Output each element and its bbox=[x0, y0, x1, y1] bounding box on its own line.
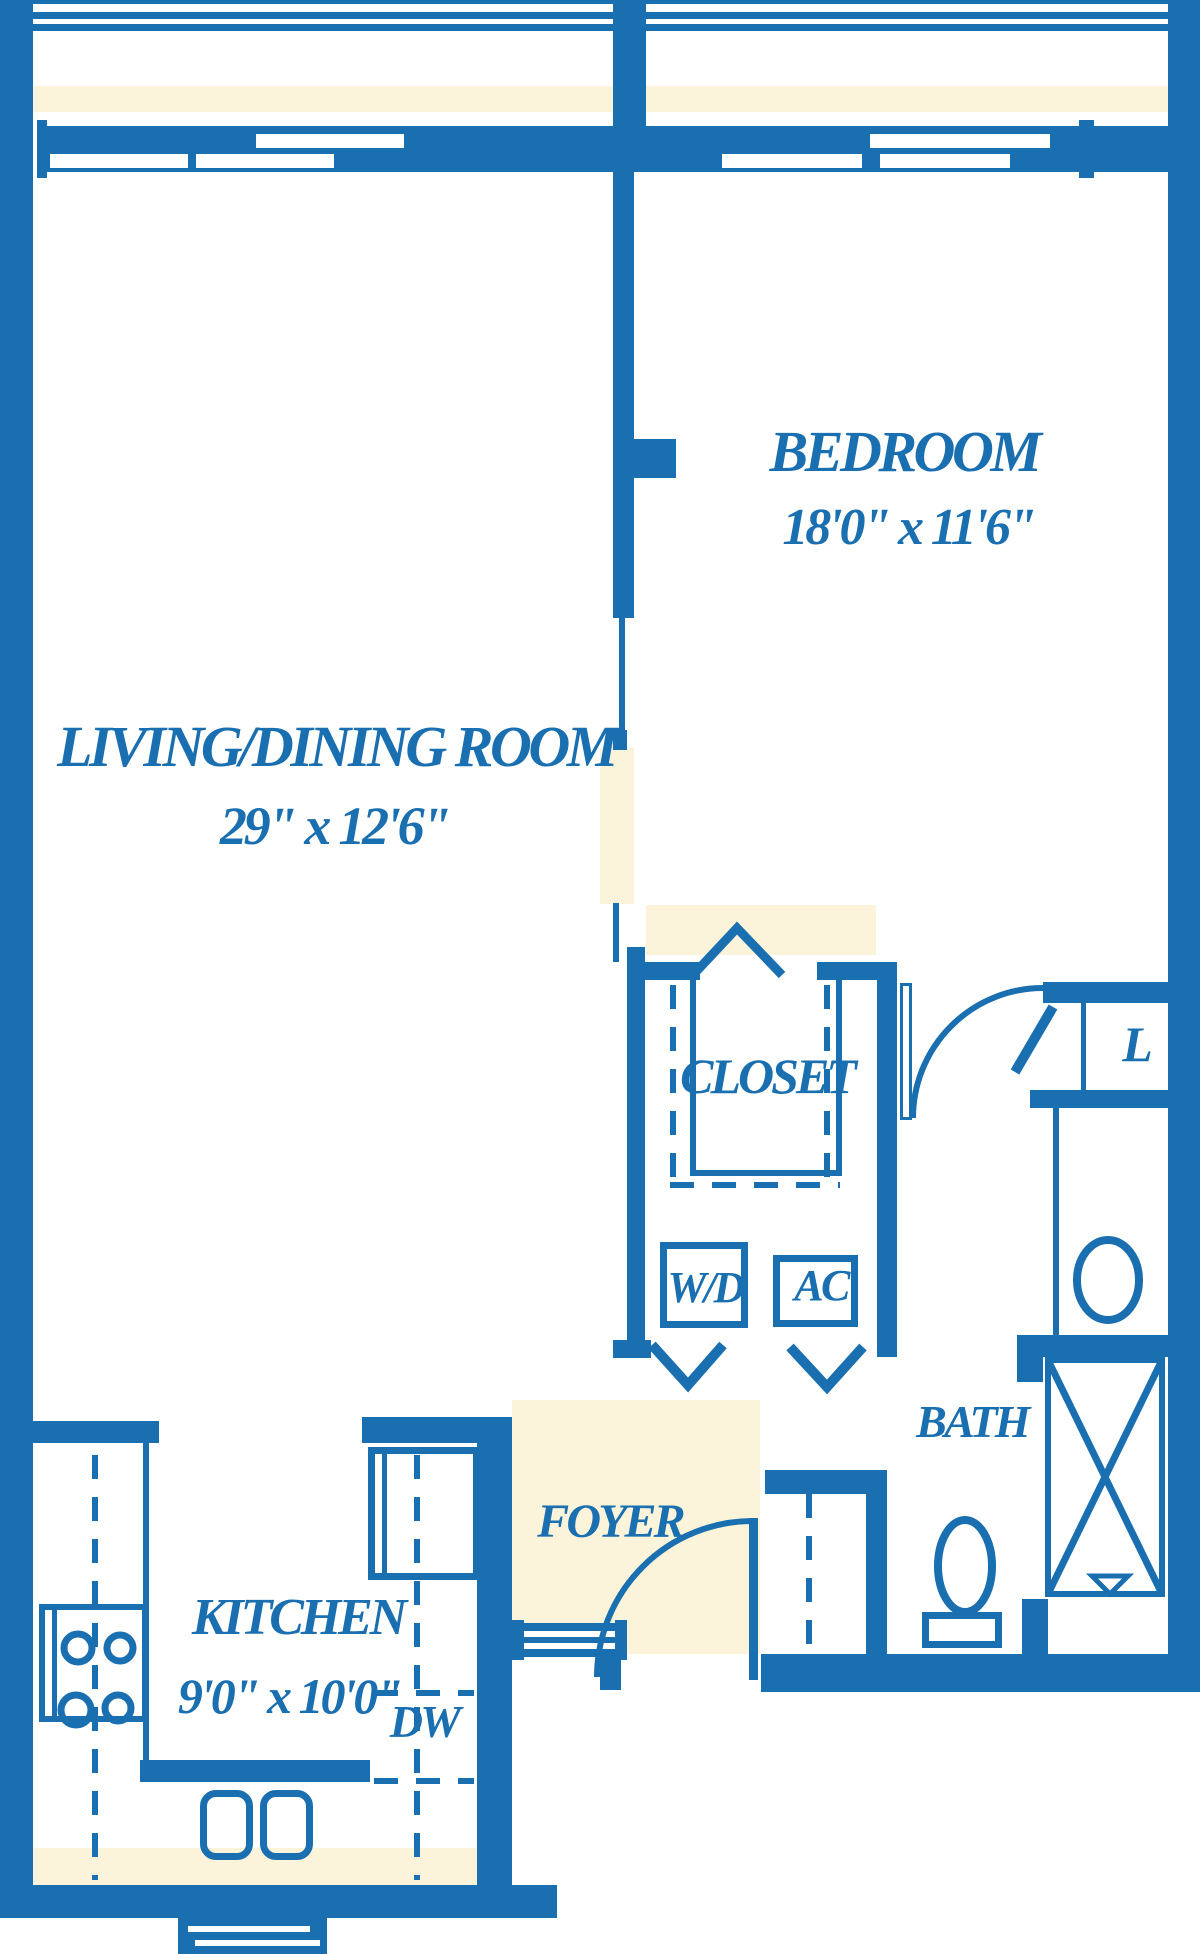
shower-box bbox=[1045, 1357, 1165, 1597]
wall-bedroom-stub bbox=[634, 439, 676, 478]
sink-basin-left bbox=[200, 1790, 253, 1860]
bedroom-window-pane bbox=[870, 134, 1050, 148]
bedroom-dimensions: 18'0" x 11'6" bbox=[782, 502, 1033, 554]
dishwasher-label: DW bbox=[390, 1699, 459, 1745]
tint-hall-above-closet bbox=[646, 905, 876, 955]
entry-threshold bbox=[524, 1623, 615, 1657]
closet-rod-dash-bottom bbox=[670, 1182, 840, 1188]
linen-door-swing-arc bbox=[913, 988, 1043, 1118]
balcony-line-3 bbox=[33, 24, 1172, 31]
entry-threshold-cap-left bbox=[512, 1620, 524, 1660]
kitchen-right-wall bbox=[477, 1443, 512, 1885]
living-window-pane bbox=[196, 154, 334, 168]
entry-threshold-line bbox=[524, 1643, 615, 1649]
stove-edge-line bbox=[52, 1610, 57, 1716]
washer-dryer-lid-line bbox=[667, 1252, 741, 1258]
closet-rod-dash-left bbox=[670, 985, 676, 1185]
vanity-edge-line bbox=[1053, 1108, 1059, 1335]
living-room-label: LIVING/DINING ROOM bbox=[57, 718, 615, 776]
bedroom-window-wall-right bbox=[1094, 126, 1168, 172]
closet-inner-line-bottom bbox=[690, 1170, 842, 1176]
entry-threshold-line bbox=[524, 1631, 615, 1637]
living-window-end-cap bbox=[37, 120, 47, 178]
dishwasher-dash-bottom bbox=[374, 1778, 474, 1784]
closet-top-stub-left bbox=[627, 962, 700, 980]
living-room-dimensions: 29" x 12'6" bbox=[220, 799, 448, 853]
bedroom-window-pane bbox=[880, 154, 1010, 168]
floor-plan: LIVING/DINING ROOM 29" x 12'6" BEDROOM 1… bbox=[0, 0, 1200, 1954]
bath-label: BATH bbox=[916, 1399, 1028, 1445]
vanity-sink-icon bbox=[1077, 1240, 1139, 1320]
linen-top-wall bbox=[1043, 982, 1168, 1003]
living-window-pane bbox=[256, 134, 404, 148]
foyer-label: FOYER bbox=[537, 1498, 683, 1546]
entry-door-stop-block bbox=[600, 1655, 621, 1690]
bedroom-window-end-cap bbox=[1079, 120, 1094, 178]
bedroom-window-wall-left bbox=[646, 126, 710, 172]
closet-top-stub-right bbox=[817, 962, 897, 980]
closet-label: CLOSET bbox=[680, 1051, 854, 1101]
kitchen-window-pane bbox=[195, 1940, 320, 1946]
wall-passage-jamb bbox=[613, 903, 619, 962]
entry-door-leaf bbox=[749, 1518, 758, 1680]
linen-door-leaf bbox=[1015, 1007, 1053, 1072]
washer-dryer-label: W/D bbox=[667, 1266, 742, 1310]
entry-threshold-cap-right bbox=[615, 1620, 627, 1660]
bath-pocket-door-dash bbox=[806, 1494, 812, 1654]
wall-bottom-kitchen bbox=[0, 1885, 557, 1918]
wall-left-exterior bbox=[0, 0, 33, 1918]
kitchen-cabinet-dash-left bbox=[92, 1455, 98, 1880]
foyer-bath-wall-side bbox=[866, 1494, 887, 1654]
kitchen-top-wall-right bbox=[362, 1417, 512, 1443]
linen-closet-label: L bbox=[1122, 1019, 1150, 1069]
tint-top-strip bbox=[33, 86, 1168, 112]
balcony-line-2 bbox=[33, 12, 1172, 19]
refrigerator-door-line bbox=[382, 1453, 387, 1574]
wall-living-bedroom bbox=[613, 172, 634, 618]
wall-thin-partition bbox=[619, 605, 625, 750]
ac-label: AC bbox=[794, 1264, 847, 1308]
closet-left-wall bbox=[627, 947, 645, 1358]
bedroom-label: BEDROOM bbox=[770, 423, 1039, 481]
sink-basin-right bbox=[260, 1790, 313, 1860]
kitchen-window bbox=[178, 1918, 327, 1954]
foyer-bath-wall-top bbox=[765, 1470, 887, 1494]
closet-right-wall bbox=[877, 980, 897, 1357]
linen-bottom-wall bbox=[1030, 1090, 1168, 1108]
wall-bottom-right bbox=[761, 1654, 1181, 1692]
kitchen-label: KITCHEN bbox=[192, 1592, 404, 1644]
kitchen-dimensions: 9'0" x 10'0" bbox=[178, 1671, 400, 1721]
divider-wall-column bbox=[613, 0, 646, 172]
bedroom-hall-jamb bbox=[900, 983, 912, 1120]
closet-left-wall-foot bbox=[613, 1340, 651, 1358]
balcony-line-1 bbox=[0, 0, 1200, 4]
bedroom-window-pane bbox=[722, 154, 862, 168]
counter-front-bar bbox=[140, 1760, 370, 1782]
toilet-bowl-icon bbox=[938, 1520, 992, 1612]
kitchen-cabinet-dash-right bbox=[414, 1455, 420, 1880]
washer-dryer-bifold-door-icon bbox=[652, 1345, 723, 1385]
shower-corner-block bbox=[1022, 1599, 1048, 1654]
ac-bifold-door-icon bbox=[790, 1347, 863, 1387]
linen-shelf-line bbox=[1081, 1003, 1086, 1090]
kitchen-window-pane bbox=[188, 1926, 310, 1932]
bath-mid-wall-block bbox=[1017, 1335, 1043, 1382]
wall-right-exterior bbox=[1168, 0, 1200, 1692]
kitchen-top-wall-left bbox=[33, 1421, 159, 1443]
living-window-pane bbox=[50, 154, 188, 168]
toilet-tank bbox=[922, 1612, 1002, 1648]
